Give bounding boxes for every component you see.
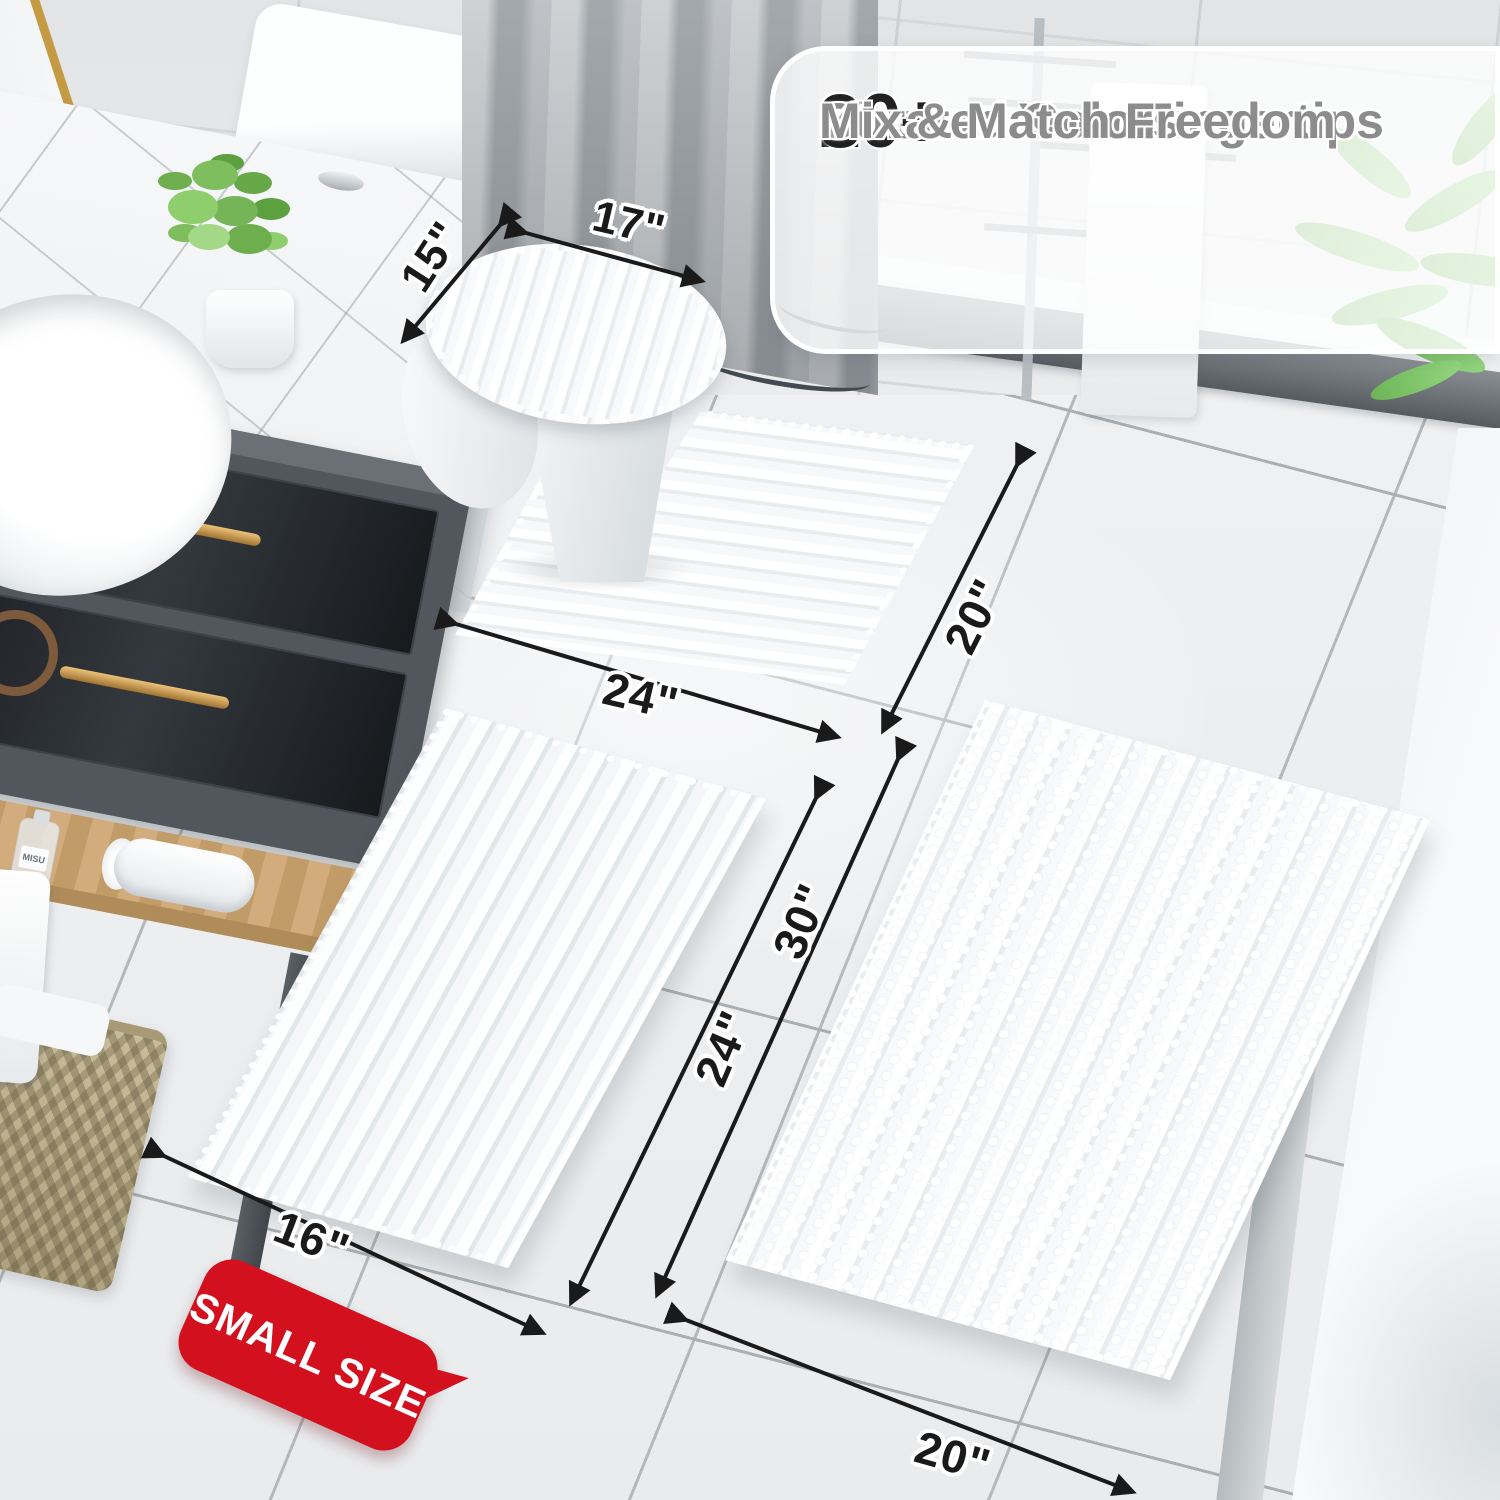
banner-label: Mix & Match Freedom [819, 92, 1336, 150]
perfume-bottle-cap [33, 809, 51, 826]
bathroom-product-scene: MISU 15" 17" 24" 20" 16" [0, 0, 1500, 1500]
feature-banner: ✔ 20+ Sizes at Your Fingertips ✔ 30+ Cur… [770, 46, 1500, 354]
potted-plant [158, 172, 192, 190]
plant-pot [206, 290, 294, 368]
